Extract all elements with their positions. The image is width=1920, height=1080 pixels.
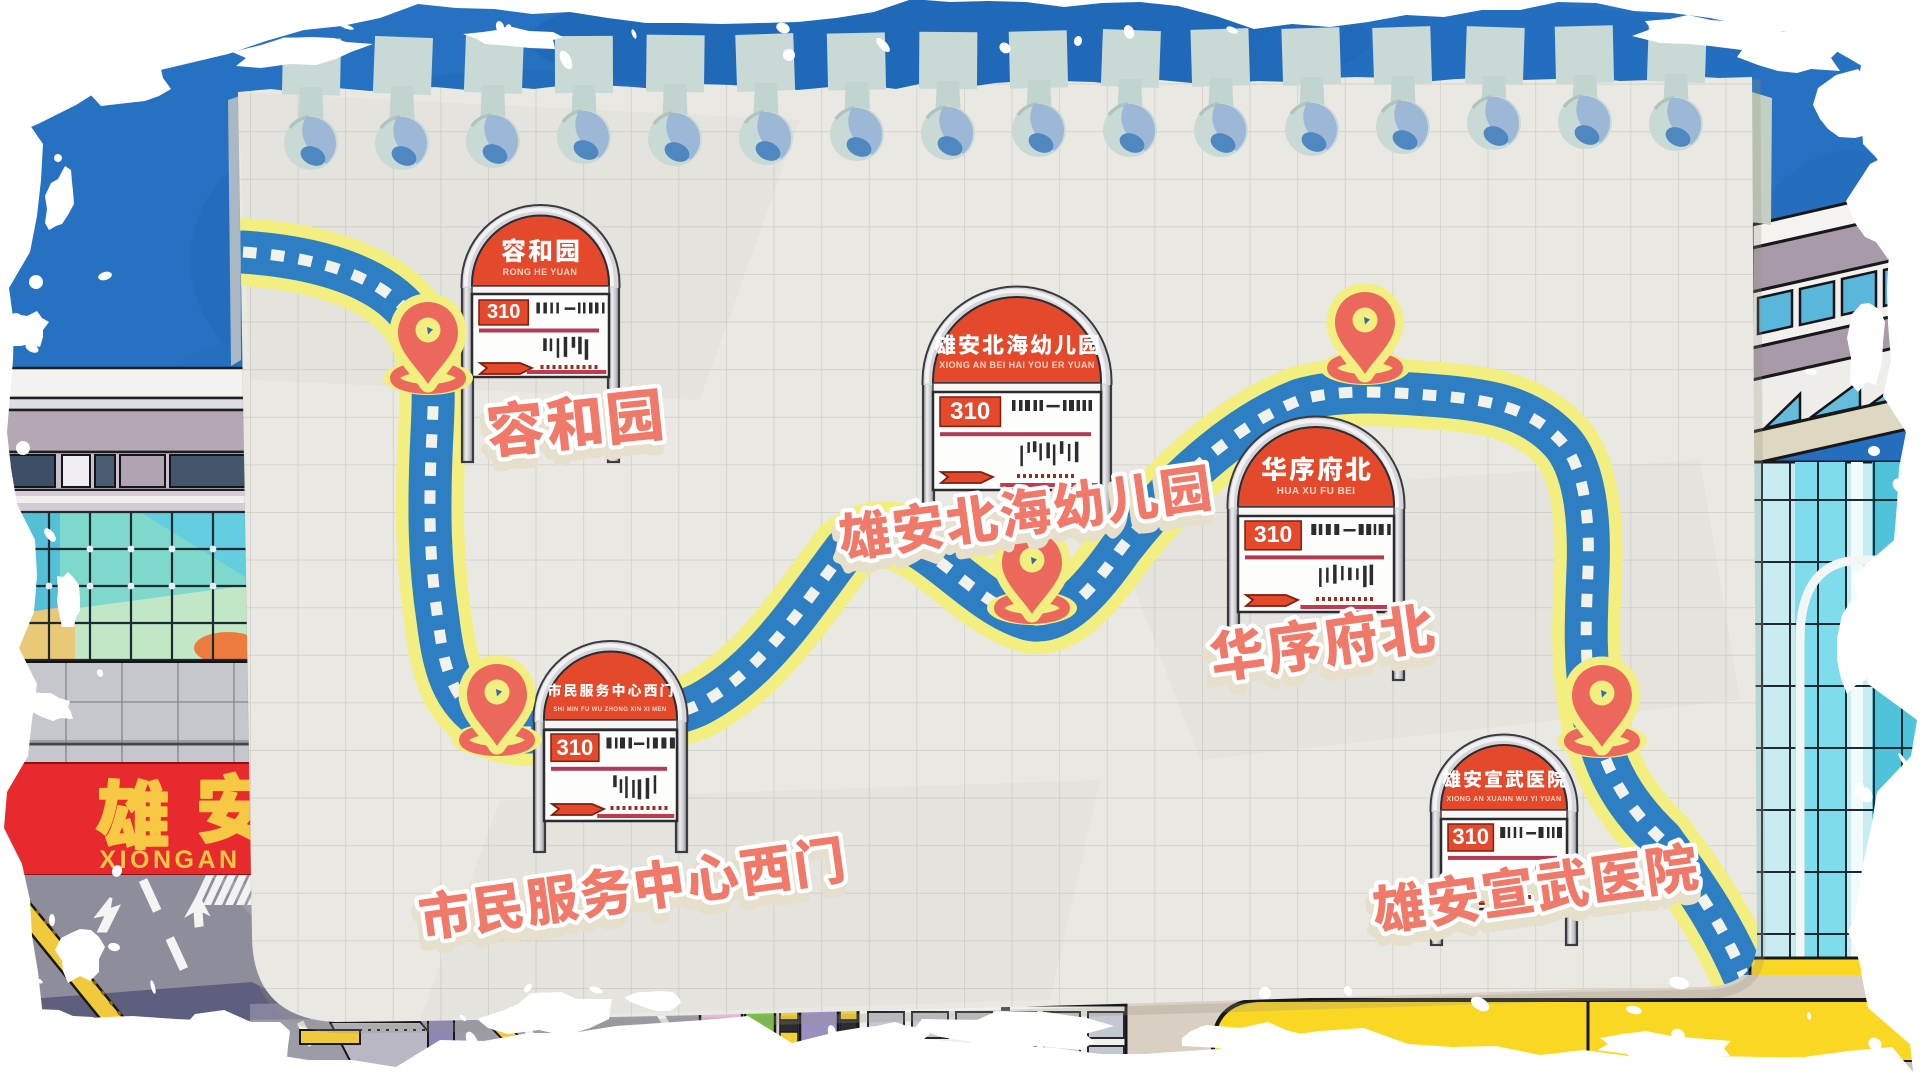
svg-text:RONG HE YUAN: RONG HE YUAN [503,267,578,277]
svg-text:310: 310 [950,398,990,425]
svg-text:XIONG AN XUANN WU YI YUAN: XIONG AN XUANN WU YI YUAN [1447,796,1562,803]
svg-text:XIONG AN BEI HAI YOU ER YUAN: XIONG AN BEI HAI YOU ER YUAN [939,360,1095,370]
svg-text:310: 310 [1254,521,1292,547]
svg-text:310: 310 [557,735,594,760]
svg-text:310: 310 [487,301,520,323]
svg-text:310: 310 [1452,824,1489,849]
svg-text:HUA XU FU BEI: HUA XU FU BEI [1277,486,1356,497]
svg-text:SHI MIN FU WU ZHONG XIN XI MEN: SHI MIN FU WU ZHONG XIN XI MEN [553,707,666,713]
